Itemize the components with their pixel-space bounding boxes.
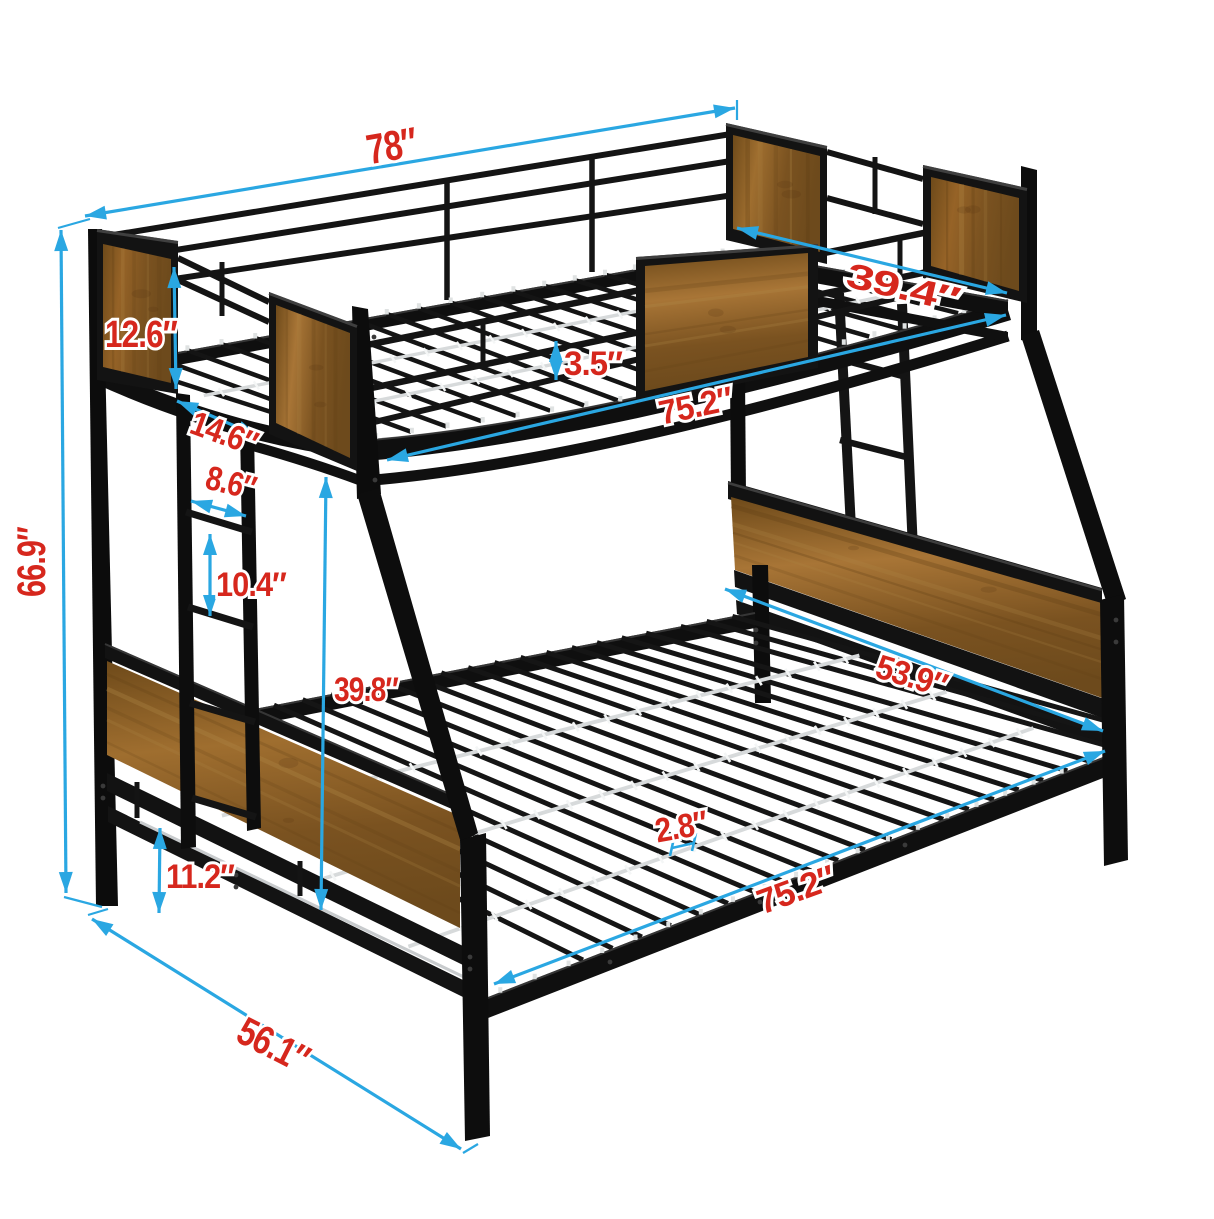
svg-text:66.9″: 66.9″ [10, 526, 54, 597]
svg-text:11.2″: 11.2″ [166, 858, 235, 896]
svg-text:12.6″: 12.6″ [105, 314, 178, 356]
svg-text:78″: 78″ [363, 118, 421, 173]
svg-text:10.4″: 10.4″ [216, 566, 287, 604]
svg-text:3.5″: 3.5″ [564, 345, 623, 383]
svg-text:39.8″: 39.8″ [334, 671, 399, 709]
